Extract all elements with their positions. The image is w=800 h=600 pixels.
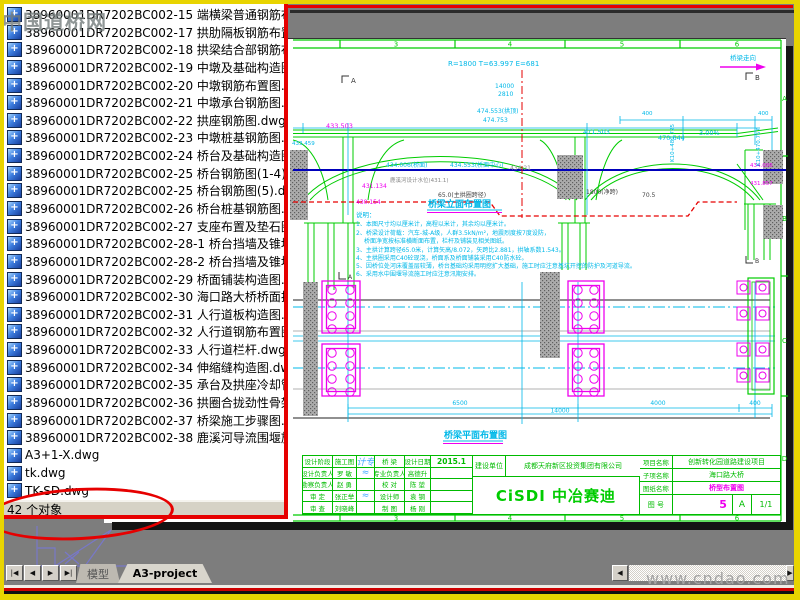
file-item[interactable]: +38960001DR7202BC002-25 桥台钢筋图(1-4).dwg <box>2 164 284 182</box>
dwg-file-icon: + <box>7 201 22 216</box>
file-label: 38960001DR7202BC002-18 拱梁结合部钢筋布置图. <box>25 41 284 58</box>
titleblock-cell <box>357 502 375 514</box>
file-item[interactable]: +38960001DR7202BC002-24 桥台及基础构造图.dwg <box>2 147 284 165</box>
file-label: 38960001DR7202BC002-14 中横梁普通钢筋布置图. <box>25 0 284 5</box>
screenshot-root: 3 4 5 6 3 4 5 6 A B C D <box>0 0 800 600</box>
file-label: 38960001DR7202BC002-24 桥台及基础构造图.dwg <box>25 147 284 164</box>
tab-nav-button[interactable]: ▶| <box>60 565 77 581</box>
file-label: 38960001DR7202BC002-25 桥台钢筋图(5).dwg <box>25 182 284 199</box>
titleblock-cell: 桥 梁 <box>375 456 405 468</box>
subproject-label: 子项名称 <box>640 469 673 481</box>
cisdi-logo: CiSDI 中冶赛迪 <box>473 477 640 514</box>
dwg-file-icon: + <box>7 130 22 145</box>
dwg-file-icon: + <box>7 60 22 75</box>
dwg-file-icon: + <box>7 42 22 57</box>
titleblock-cell: 杨 刚 <box>405 502 431 514</box>
titleblock-cell: ≈ <box>357 468 375 480</box>
window-edge <box>290 10 794 13</box>
titleblock-cell: 高德升 <box>405 468 431 480</box>
owner-label: 建设单位 <box>473 456 506 476</box>
file-item[interactable]: +38960001DR7202BC002-33 人行道栏杆.dwg <box>2 341 284 359</box>
titleblock-cell: 罗 敏 <box>333 468 357 480</box>
file-item[interactable]: +tk.dwg <box>2 464 284 482</box>
dwg-file-icon: + <box>7 448 22 463</box>
dwg-file-icon: + <box>7 395 22 410</box>
file-label: 38960001DR7202BC002-38 鹿溪河导流围堰施工示. <box>25 429 284 446</box>
sheet-page: 1/1 <box>752 495 780 514</box>
file-panel[interactable]: +38960001DR7202BC002-14 中横梁普通钢筋布置图.+3896… <box>2 0 284 519</box>
file-item[interactable]: +38960001DR7202BC002-21 中墩承台钢筋图.dwg <box>2 94 284 112</box>
file-item[interactable]: +38960001DR7202BC002-19 中墩及基础构造图.dwg <box>2 59 284 77</box>
sheet-no: 5 <box>673 495 733 514</box>
titleblock-cell <box>431 468 473 480</box>
watermark-top: 中国道桥网 <box>2 6 107 35</box>
sheet-size: A <box>733 495 752 514</box>
owner-name: 成都天府新区投资集团有限公司 <box>506 456 640 476</box>
titleblock-cell <box>431 502 473 514</box>
file-item[interactable]: +38960001DR7202BC002-28-2 桥台挡墙及锥坡构造. <box>2 253 284 271</box>
titleblock-cell <box>431 491 473 503</box>
titleblock-table: 设计阶段施工图设计专业桥 梁设计日期2015.1设计负责人罗 敏≈专业负责人高德… <box>303 456 473 514</box>
dwg-file-icon: + <box>7 430 22 445</box>
file-item[interactable]: +38960001DR7202BC002-27 支座布置及垫石图.dwg <box>2 217 284 235</box>
paper-shadow-bottom <box>112 522 793 530</box>
file-label: 38960001DR7202BC002-26 桥台桩基钢筋图.dwg <box>25 200 284 217</box>
titleblock-cell: 设计专业 <box>357 456 375 468</box>
titleblock-cell: 袁 钢 <box>405 491 431 503</box>
titleblock-cell: 校 对 <box>375 479 405 491</box>
titleblock-middle: 建设单位 成都天府新区投资集团有限公司 CiSDI 中冶赛迪 <box>473 456 640 514</box>
annotation-line-vertical <box>284 0 288 519</box>
tab-nav-button[interactable]: ▶ <box>42 565 59 581</box>
file-label: 38960001DR7202BC002-23 中墩桩基钢筋图.dwg <box>25 129 284 146</box>
file-item[interactable]: +38960001DR7202BC002-20 中墩钢筋布置图.dwg <box>2 76 284 94</box>
project-name: 创新转化园道路建设项目 <box>673 456 780 468</box>
file-label: 38960001DR7202BC002-25 桥台钢筋图(1-4).dwg <box>25 165 284 182</box>
dwg-file-icon: + <box>7 254 22 269</box>
file-item[interactable]: +38960001DR7202BC002-18 拱梁结合部钢筋布置图. <box>2 41 284 59</box>
file-label: 38960001DR7202BC002-34 伸缩缝构造图.dwg <box>25 359 284 376</box>
titleblock-cell: 审 查 <box>303 502 333 514</box>
file-item[interactable]: +38960001DR7202BC002-28-1 桥台挡墙及锥坡构造. <box>2 235 284 253</box>
file-label: A3+1-X.dwg <box>25 448 99 462</box>
titleblock-cell <box>357 479 375 491</box>
titleblock-cell: 设计师 <box>375 491 405 503</box>
file-label: 38960001DR7202BC002-29 桥面铺装构造图.dwg <box>25 271 284 288</box>
dwg-file-icon: + <box>7 148 22 163</box>
file-item[interactable]: +38960001DR7202BC002-32 人行道钢筋布置图.dwg <box>2 323 284 341</box>
titleblock-cell: 赵 勇 <box>333 479 357 491</box>
file-item[interactable]: +A3+1-X.dwg <box>2 447 284 465</box>
dwg-file-icon: + <box>7 166 22 181</box>
file-label: 38960001DR7202BC002-27 支座布置及垫石图.dwg <box>25 218 284 235</box>
file-label: 38960001DR7202BC002-36 拱圈合拢劲性骨架图.dw <box>25 394 284 411</box>
titleblock-cell: 制 图 <box>375 502 405 514</box>
titleblock-cell <box>431 479 473 491</box>
dwg-file-icon: + <box>7 307 22 322</box>
annotation-line-top <box>288 5 793 8</box>
file-item[interactable]: +38960001DR7202BC002-37 桥梁施工步骤图.dwg <box>2 411 284 429</box>
file-item[interactable]: +38960001DR7202BC002-34 伸缩缝构造图.dwg <box>2 358 284 376</box>
file-item[interactable]: +38960001DR7202BC002-22 拱座钢筋图.dwg <box>2 111 284 129</box>
file-list: +38960001DR7202BC002-14 中横梁普通钢筋布置图.+3896… <box>2 0 284 500</box>
titleblock-cell: 施工图 <box>333 456 357 468</box>
dwg-file-icon: + <box>7 236 22 251</box>
file-label: 38960001DR7202BC002-33 人行道栏杆.dwg <box>25 341 284 358</box>
bottom-strip-black <box>4 591 794 594</box>
file-label: 38960001DR7202BC002-32 人行道钢筋布置图.dwg <box>25 323 284 340</box>
file-item[interactable]: +38960001DR7202BC002-26 桥台桩基钢筋图.dwg <box>2 200 284 218</box>
tab-layout-a3-project[interactable]: A3-project <box>118 564 212 583</box>
title-block: 设计阶段施工图设计专业桥 梁设计日期2015.1设计负责人罗 敏≈专业负责人高德… <box>302 455 781 515</box>
file-item[interactable]: +38960001DR7202BC002-38 鹿溪河导流围堰施工示. <box>2 429 284 447</box>
tab-nav: |◀◀▶▶| <box>6 565 77 581</box>
file-item[interactable]: +38960001DR7202BC002-23 中墩桩基钢筋图.dwg <box>2 129 284 147</box>
file-item[interactable]: +38960001DR7202BC002-14 中横梁普通钢筋布置图. <box>2 0 284 6</box>
dwg-file-icon: + <box>7 377 22 392</box>
dwg-file-icon: + <box>7 466 22 481</box>
file-label: 38960001DR7202BC002-21 中墩承台钢筋图.dwg <box>25 94 284 111</box>
titleblock-cell: ≈ <box>357 491 375 503</box>
dwg-file-icon: + <box>7 219 22 234</box>
file-item[interactable]: +38960001DR7202BC002-29 桥面铺装构造图.dwg <box>2 270 284 288</box>
tab-nav-button[interactable]: |◀ <box>6 565 23 581</box>
dwg-file-icon: + <box>7 360 22 375</box>
sheet-name-label: 图纸名称 <box>640 482 673 494</box>
paper-shadow-right <box>786 46 793 530</box>
tab-nav-button[interactable]: ◀ <box>24 565 41 581</box>
titleblock-cell: 2015.1 <box>431 456 473 468</box>
titleblock-cell: 设计日期 <box>405 456 431 468</box>
dwg-file-icon: + <box>7 78 22 93</box>
titleblock-cell: 专业负责人 <box>375 468 405 480</box>
file-label: 38960001DR7202BC002-28-1 桥台挡墙及锥坡构造. <box>25 235 284 252</box>
titleblock-cell: 张正举 <box>333 491 357 503</box>
file-label: 38960001DR7202BC002-22 拱座钢筋图.dwg <box>25 112 284 129</box>
dwg-file-icon: + <box>7 289 22 304</box>
titleblock-cell: 设计负责人 <box>303 468 333 480</box>
titleblock-cell: 勘察负责人 <box>303 479 333 491</box>
sheet-name: 桥型布置图 <box>673 482 780 494</box>
file-label: 38960001DR7202BC002-35 承台及拱座冷却管.dwg <box>25 376 284 393</box>
file-item[interactable]: +38960001DR7202BC002-35 承台及拱座冷却管.dwg <box>2 376 284 394</box>
dwg-file-icon: + <box>7 342 22 357</box>
dwg-file-icon: + <box>7 324 22 339</box>
dwg-file-icon: + <box>7 272 22 287</box>
tab-model[interactable]: 模型 <box>76 564 120 583</box>
file-label: 38960001DR7202BC002-30 海口路大桥桥面排水构. <box>25 288 284 305</box>
file-label: 38960001DR7202BC002-28-2 桥台挡墙及锥坡构造. <box>25 253 284 270</box>
dwg-file-icon: + <box>7 0 22 4</box>
file-item[interactable]: +38960001DR7202BC002-30 海口路大桥桥面排水构. <box>2 288 284 306</box>
dwg-file-icon: + <box>7 183 22 198</box>
titleblock-cell: 设计阶段 <box>303 456 333 468</box>
file-item[interactable]: +38960001DR7202BC002-31 人行道板构造图.dwg <box>2 306 284 324</box>
dwg-file-icon: + <box>7 95 22 110</box>
dwg-file-icon: + <box>7 413 22 428</box>
file-label: tk.dwg <box>25 466 66 480</box>
file-item[interactable]: +38960001DR7202BC002-25 桥台钢筋图(5).dwg <box>2 182 284 200</box>
titleblock-cell: 审 定 <box>303 491 333 503</box>
sheet-no-label: 图 号 <box>640 495 673 514</box>
file-label: 38960001DR7202BC002-37 桥梁施工步骤图.dwg <box>25 412 284 429</box>
file-item[interactable]: +38960001DR7202BC002-36 拱圈合拢劲性骨架图.dw <box>2 394 284 412</box>
file-label: 38960001DR7202BC002-19 中墩及基础构造图.dwg <box>25 59 284 76</box>
project-label: 项目名称 <box>640 456 673 468</box>
file-label: 38960001DR7202BC002-31 人行道板构造图.dwg <box>25 306 284 323</box>
watermark-bottom: www.cndao.com <box>646 569 790 588</box>
scrollbar-left-button[interactable]: ◀ <box>612 565 628 581</box>
dwg-file-icon: + <box>7 113 22 128</box>
titleblock-cell: 刘晓峰 <box>333 502 357 514</box>
titleblock-right: 项目名称 创新转化园道路建设项目 子项名称 海口路大桥 图纸名称 桥型布置图 图… <box>640 456 780 514</box>
file-label: 38960001DR7202BC002-20 中墩钢筋布置图.dwg <box>25 77 284 94</box>
subproject-name: 海口路大桥 <box>673 469 780 481</box>
titleblock-cell: 陈 堃 <box>405 479 431 491</box>
